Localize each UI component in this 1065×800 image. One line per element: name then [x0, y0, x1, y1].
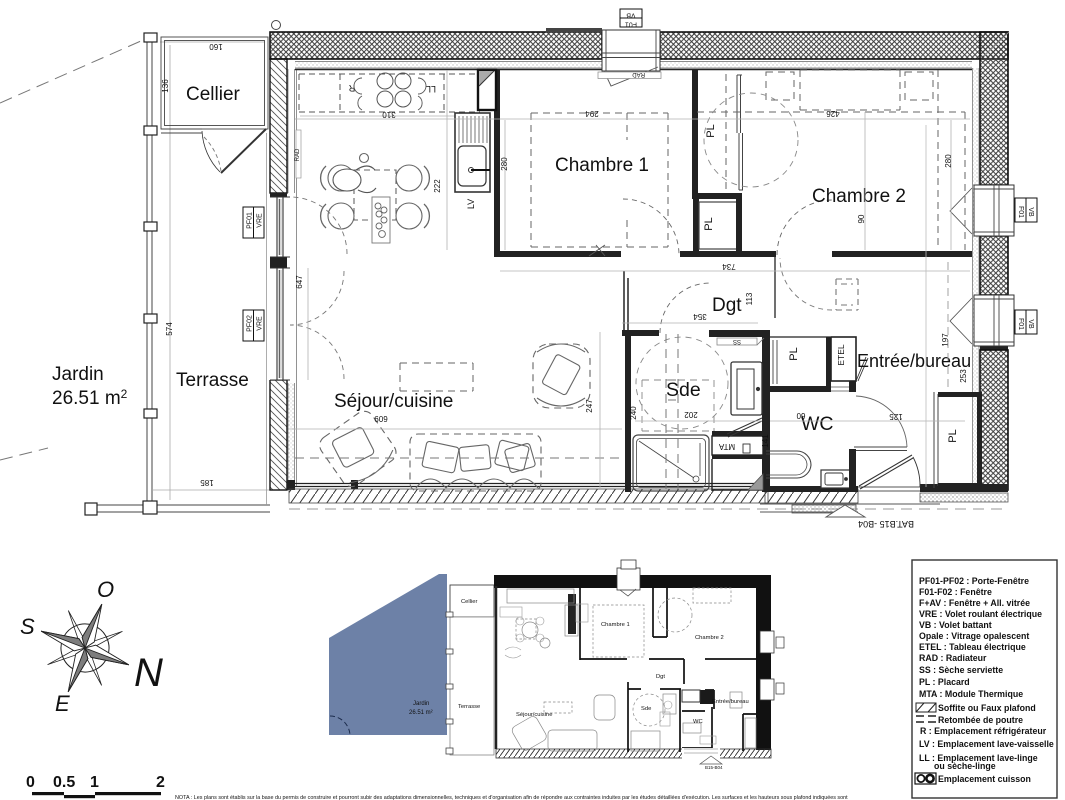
svg-text:WC: WC: [693, 719, 703, 725]
svg-text:VB: VB: [626, 12, 636, 19]
svg-text:PL: PL: [703, 217, 715, 230]
svg-text:1: 1: [90, 774, 99, 791]
svg-text:202: 202: [684, 410, 698, 419]
svg-text:PL : Placard: PL : Placard: [919, 677, 970, 687]
svg-text:197: 197: [941, 333, 950, 347]
svg-text:Jardin: Jardin: [52, 364, 104, 385]
svg-text:240: 240: [629, 406, 638, 420]
svg-text:LL: LL: [426, 84, 436, 94]
svg-text:VB: VB: [1027, 207, 1034, 217]
svg-text:PL: PL: [705, 124, 717, 137]
svg-text:247: 247: [585, 399, 594, 413]
svg-text:MTA: MTA: [718, 442, 735, 451]
svg-text:Dgt: Dgt: [712, 295, 742, 316]
svg-text:Opale : Vitrage opalescent: Opale : Vitrage opalescent: [919, 631, 1029, 641]
svg-text:Soffite ou Faux plafond: Soffite ou Faux plafond: [938, 703, 1036, 713]
svg-text:734: 734: [722, 262, 736, 271]
svg-text:PL: PL: [788, 347, 800, 360]
svg-text:253: 253: [959, 369, 968, 383]
svg-text:26.51 m²: 26.51 m²: [409, 710, 433, 716]
svg-text:294: 294: [585, 109, 599, 118]
svg-text:R : Emplacement réfrigérateur: R : Emplacement réfrigérateur: [920, 726, 1047, 736]
svg-text:ETEL : Tableau électrique: ETEL : Tableau électrique: [919, 642, 1026, 652]
svg-text:LV: LV: [466, 199, 476, 209]
svg-text:S: S: [20, 614, 35, 639]
svg-text:222: 222: [433, 179, 442, 193]
svg-text:SS: SS: [733, 338, 741, 344]
svg-text:574: 574: [165, 322, 174, 336]
svg-text:VRE : Volet roulant électrique: VRE : Volet roulant électrique: [919, 609, 1042, 619]
svg-text:0.5: 0.5: [53, 774, 75, 791]
svg-text:N: N: [134, 651, 163, 695]
svg-text:Entrée/bureau: Entrée/bureau: [857, 351, 971, 371]
svg-text:Cellier: Cellier: [186, 84, 241, 105]
svg-text:PL: PL: [947, 429, 959, 442]
svg-text:Chambre 1: Chambre 1: [601, 622, 630, 628]
svg-text:Retombée de poutre: Retombée de poutre: [938, 715, 1023, 725]
svg-text:160: 160: [209, 42, 223, 51]
svg-text:VRE: VRE: [257, 316, 264, 331]
svg-text:B15-B04: B15-B04: [705, 765, 723, 770]
svg-text:O: O: [97, 577, 114, 602]
svg-text:2: 2: [156, 774, 165, 791]
svg-text:Dgt: Dgt: [656, 674, 665, 680]
svg-text:Chambre 2: Chambre 2: [812, 186, 906, 207]
svg-text:Entrée/bureau: Entrée/bureau: [712, 699, 749, 705]
svg-text:185: 185: [200, 478, 214, 487]
svg-text:647: 647: [295, 275, 304, 289]
svg-text:PF01: PF01: [247, 212, 254, 229]
svg-text:Emplacement cuisson: Emplacement cuisson: [938, 774, 1031, 784]
svg-text:E: E: [55, 691, 70, 716]
svg-text:ETEL: ETEL: [836, 344, 846, 366]
svg-text:Terrasse: Terrasse: [458, 704, 480, 710]
svg-text:RAD: RAD: [295, 148, 301, 161]
svg-text:426: 426: [826, 109, 840, 118]
svg-text:Cellier: Cellier: [461, 599, 477, 605]
svg-text:F+AV : Fenêtre + All. vitrée: F+AV : Fenêtre + All. vitrée: [919, 598, 1030, 608]
svg-text:Séjour/cuisine: Séjour/cuisine: [516, 712, 552, 718]
svg-text:Séjour/cuisine: Séjour/cuisine: [334, 391, 453, 412]
svg-text:VB : Volet battant: VB : Volet battant: [919, 620, 992, 630]
svg-text:280: 280: [944, 154, 953, 168]
svg-text:RAD : Radiateur: RAD : Radiateur: [919, 653, 987, 663]
svg-text:PF01-PF02 : Porte-Fenêtre: PF01-PF02 : Porte-Fenêtre: [919, 576, 1029, 586]
svg-text:113: 113: [745, 292, 754, 305]
svg-text:MTA : Module Thermique: MTA : Module Thermique: [919, 689, 1023, 699]
svg-text:F01: F01: [1017, 318, 1024, 330]
svg-text:Chambre 2: Chambre 2: [695, 635, 724, 641]
svg-text:SS : Sèche serviette: SS : Sèche serviette: [919, 665, 1003, 675]
svg-text:26.51 m2: 26.51 m2: [52, 387, 128, 409]
svg-text:Terrasse: Terrasse: [176, 370, 249, 391]
svg-text:F01-F02 : Fenêtre: F01-F02 : Fenêtre: [919, 587, 992, 597]
svg-text:Sde: Sde: [666, 379, 701, 401]
svg-text:90: 90: [857, 214, 866, 223]
svg-text:Sde: Sde: [641, 706, 651, 712]
svg-text:PF02: PF02: [247, 315, 254, 332]
svg-text:280: 280: [500, 157, 509, 171]
svg-text:BAT.B15 -B04: BAT.B15 -B04: [858, 519, 914, 529]
svg-text:354: 354: [693, 312, 707, 321]
svg-text:136: 136: [161, 79, 170, 93]
svg-text:60: 60: [796, 411, 805, 420]
svg-text:F01: F01: [1017, 206, 1024, 218]
svg-text:LV : Emplacement lave-vaissell: LV : Emplacement lave-vaisselle: [919, 739, 1054, 749]
svg-text:Chambre 1: Chambre 1: [555, 155, 649, 176]
svg-text:609: 609: [374, 414, 388, 423]
svg-text:RAD: RAD: [632, 71, 645, 77]
svg-text:Jardin: Jardin: [413, 701, 429, 707]
svg-text:VRE: VRE: [257, 213, 264, 228]
svg-text:310: 310: [382, 110, 396, 119]
svg-text:0: 0: [26, 774, 35, 791]
svg-text:141: 141: [761, 434, 770, 448]
svg-text:F01: F01: [625, 21, 637, 28]
svg-text:ou sèche-linge: ou sèche-linge: [934, 761, 996, 771]
svg-text:VB: VB: [1027, 319, 1034, 329]
svg-text:125: 125: [889, 412, 903, 421]
svg-text:NOTA : Les plans sont établis: NOTA : Les plans sont établis sur la bas…: [175, 795, 848, 800]
